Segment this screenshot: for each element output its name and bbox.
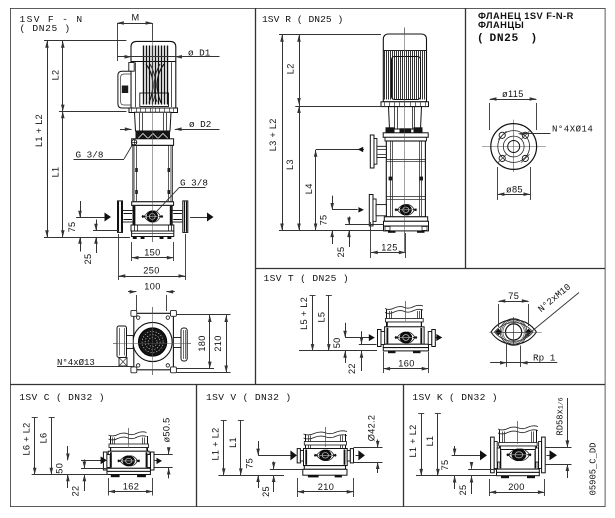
svg-text:L6: L6 — [39, 433, 49, 444]
svg-text:162: 162 — [123, 481, 139, 491]
svg-text:L1 + L2: L1 + L2 — [408, 424, 418, 457]
svg-text:125: 125 — [381, 242, 397, 252]
svg-text:100: 100 — [144, 281, 160, 291]
svg-text:1SV V ( DN32 ): 1SV V ( DN32 ) — [206, 392, 292, 403]
svg-text:160: 160 — [398, 358, 414, 368]
svg-text:N°4XØ14: N°4XØ14 — [552, 125, 593, 135]
svg-text:L3: L3 — [285, 159, 295, 170]
svg-text:150: 150 — [144, 247, 160, 257]
svg-text:22: 22 — [70, 486, 80, 497]
svg-text:ФЛАНЦЫ: ФЛАНЦЫ — [478, 20, 524, 30]
svg-text:ø115: ø115 — [502, 89, 524, 99]
svg-text:RD58x1/6: RD58x1/6 — [555, 397, 565, 435]
svg-text:L2: L2 — [286, 63, 296, 74]
svg-text:L5: L5 — [317, 312, 327, 323]
svg-text:25: 25 — [458, 485, 468, 496]
svg-text:L1 + L2: L1 + L2 — [211, 427, 221, 460]
svg-text:L1: L1 — [228, 437, 238, 448]
svg-text:75: 75 — [508, 291, 519, 301]
svg-text:1SV K ( DN32 ): 1SV K ( DN32 ) — [412, 392, 498, 403]
svg-text:180: 180 — [197, 335, 207, 351]
svg-text:ø D1: ø D1 — [188, 48, 211, 59]
svg-text:25: 25 — [261, 486, 271, 497]
svg-text:DN25: DN25 — [490, 33, 519, 45]
svg-text:75: 75 — [67, 222, 77, 233]
svg-text:L5 + L2: L5 + L2 — [299, 297, 309, 330]
svg-text:L2: L2 — [51, 70, 61, 81]
svg-text:75: 75 — [318, 215, 328, 226]
svg-text:Ø42.2: Ø42.2 — [366, 415, 376, 442]
svg-text:75: 75 — [440, 460, 450, 471]
svg-text:50: 50 — [332, 337, 342, 348]
svg-text:05905_C_DD: 05905_C_DD — [588, 443, 598, 496]
svg-text:): ) — [531, 33, 538, 45]
svg-text:1SV R ( DN25 ): 1SV R ( DN25 ) — [262, 14, 343, 25]
svg-text:G 3/8: G 3/8 — [180, 178, 208, 189]
svg-text:50: 50 — [55, 463, 65, 474]
svg-text:G 3/8: G 3/8 — [76, 150, 104, 161]
svg-text:ø D2: ø D2 — [189, 119, 211, 130]
svg-text:M: M — [132, 13, 140, 23]
svg-text:22: 22 — [347, 363, 357, 374]
svg-text:L6 + L2: L6 + L2 — [22, 422, 32, 455]
svg-text:250: 250 — [143, 266, 159, 276]
svg-text:ø50.5: ø50.5 — [162, 418, 172, 443]
svg-text:210: 210 — [318, 482, 334, 492]
svg-text:L4: L4 — [304, 183, 314, 194]
svg-text:1SV C ( DN32 ): 1SV C ( DN32 ) — [19, 392, 105, 403]
svg-text:( DN25 ): ( DN25 ) — [20, 23, 71, 34]
svg-text:(: ( — [477, 33, 484, 45]
svg-text:75: 75 — [245, 458, 255, 469]
svg-text:L3 + L2: L3 + L2 — [268, 118, 278, 151]
svg-text:1SV T ( DN25 ): 1SV T ( DN25 ) — [264, 273, 350, 284]
svg-text:L1 + L2: L1 + L2 — [34, 114, 44, 147]
svg-text:25: 25 — [336, 247, 346, 258]
svg-text:Rp 1: Rp 1 — [533, 352, 556, 363]
svg-text:25: 25 — [83, 254, 93, 265]
svg-text:210: 210 — [213, 335, 223, 351]
svg-text:L1: L1 — [51, 167, 61, 178]
svg-text:L1: L1 — [425, 436, 435, 447]
svg-text:ø85: ø85 — [506, 185, 523, 195]
svg-text:200: 200 — [508, 482, 524, 492]
